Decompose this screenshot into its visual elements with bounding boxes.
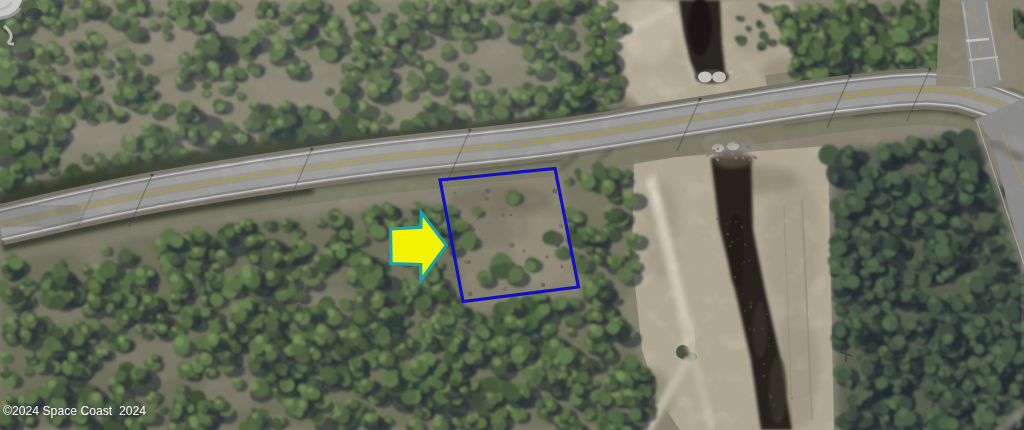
svg-text:©2024 Space Coast 2024: ©2024 Space Coast 2024 (3, 404, 146, 418)
